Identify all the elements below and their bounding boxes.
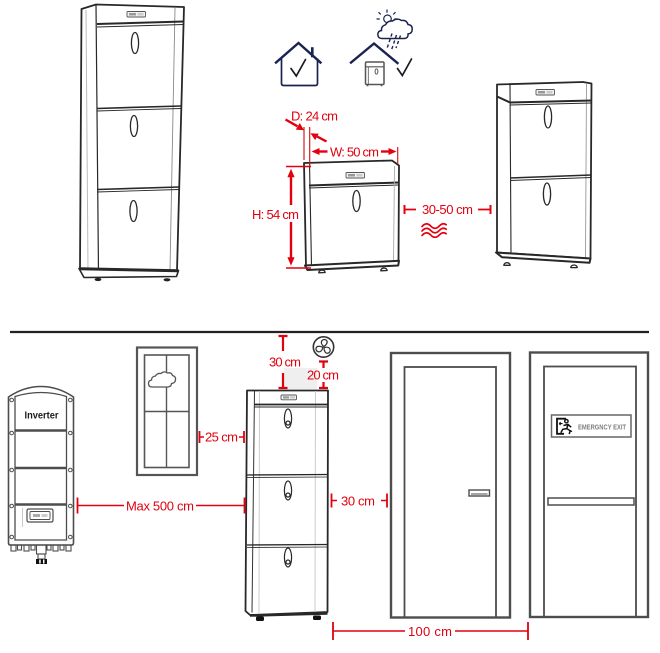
svg-text:20 cm: 20 cm bbox=[307, 368, 339, 383]
svg-text:100 cm: 100 cm bbox=[408, 624, 452, 639]
svg-text:W: 50 cm: W: 50 cm bbox=[330, 145, 379, 160]
svg-text:30 cm: 30 cm bbox=[269, 355, 301, 370]
svg-text:Inverter: Inverter bbox=[25, 411, 59, 422]
svg-text:D: 24 cm: D: 24 cm bbox=[291, 109, 338, 124]
svg-text:EMERGNCY EXIT: EMERGNCY EXIT bbox=[578, 423, 626, 432]
svg-text:30-50 cm: 30-50 cm bbox=[422, 202, 473, 217]
svg-text:30 cm: 30 cm bbox=[341, 494, 375, 509]
svg-text:25 cm: 25 cm bbox=[205, 430, 238, 445]
svg-text:Max 500 cm: Max 500 cm bbox=[126, 499, 194, 514]
svg-text:H: 54 cm: H: 54 cm bbox=[252, 207, 299, 222]
